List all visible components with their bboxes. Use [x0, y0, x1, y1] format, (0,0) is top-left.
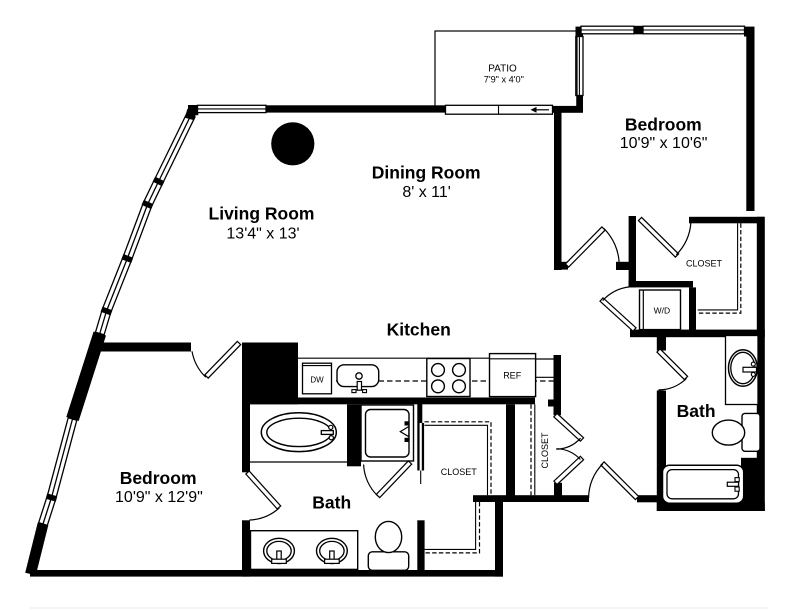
svg-text:10'9" x 12'9": 10'9" x 12'9" [115, 489, 203, 506]
svg-text:CLOSET: CLOSET [441, 467, 478, 477]
svg-text:Bath: Bath [677, 401, 716, 421]
svg-text:Bath: Bath [312, 492, 351, 512]
svg-text:REF: REF [503, 371, 522, 381]
svg-text:Dining Room: Dining Room [372, 163, 481, 183]
svg-text:CLOSET: CLOSET [540, 432, 550, 469]
svg-text:DW: DW [310, 376, 324, 385]
svg-text:W/D: W/D [654, 306, 671, 316]
svg-text:Bedroom: Bedroom [120, 468, 197, 488]
svg-text:PATIO: PATIO [488, 63, 517, 74]
svg-text:Bedroom: Bedroom [625, 115, 702, 135]
svg-text:Living Room: Living Room [209, 204, 315, 224]
svg-text:10'9" x 10'6": 10'9" x 10'6" [620, 135, 708, 152]
svg-text:CLOSET: CLOSET [686, 259, 723, 269]
svg-text:8' x 11': 8' x 11' [402, 184, 451, 201]
svg-text:7'9" x 4'0": 7'9" x 4'0" [484, 74, 524, 84]
svg-text:Kitchen: Kitchen [387, 320, 451, 340]
svg-text:13'4" x 13': 13'4" x 13' [226, 226, 299, 243]
